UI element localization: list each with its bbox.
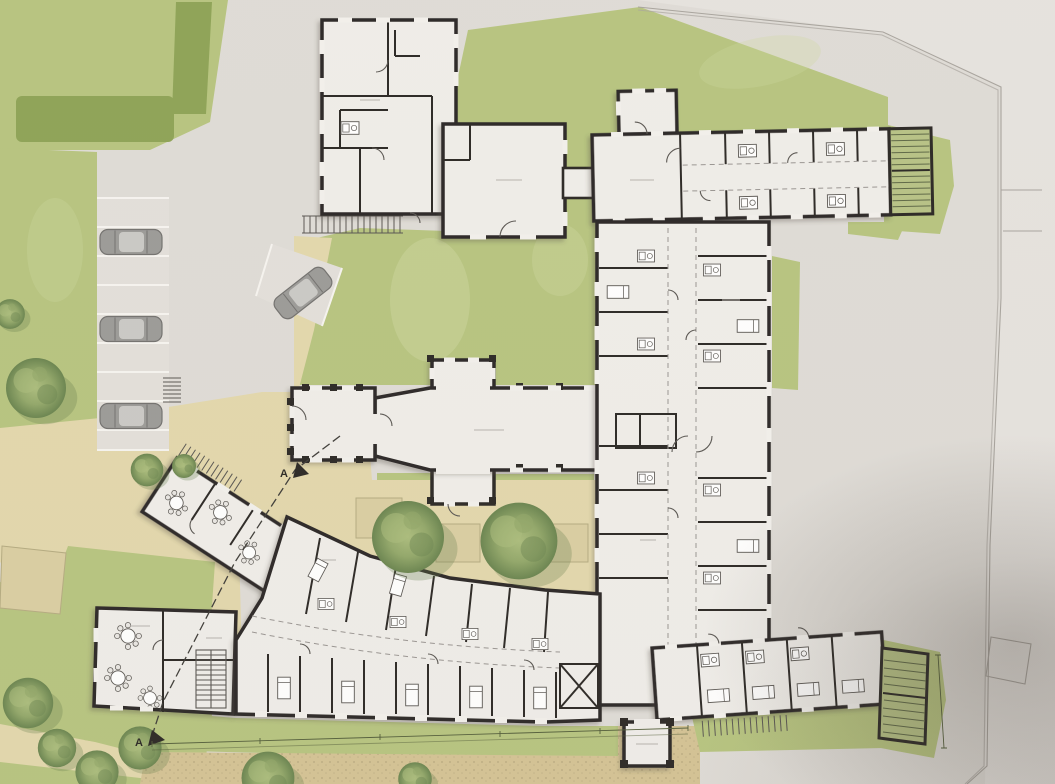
hedge [172, 2, 212, 114]
garden-porch [620, 718, 674, 768]
car [100, 404, 162, 429]
car [100, 317, 162, 342]
car [100, 230, 162, 255]
section-marker-label: A [135, 737, 143, 749]
hedge [16, 96, 174, 142]
site-plan-photo: A A [0, 0, 1055, 784]
bath-pod [341, 122, 359, 135]
east-lawn-strip [772, 256, 800, 390]
external-stair-south [879, 648, 928, 744]
corridor-wing-center [595, 222, 772, 705]
site-plan: A A [0, 0, 1055, 784]
section-marker-label: A [280, 468, 288, 480]
bike-rack [163, 378, 181, 402]
raised-bed [0, 546, 66, 614]
